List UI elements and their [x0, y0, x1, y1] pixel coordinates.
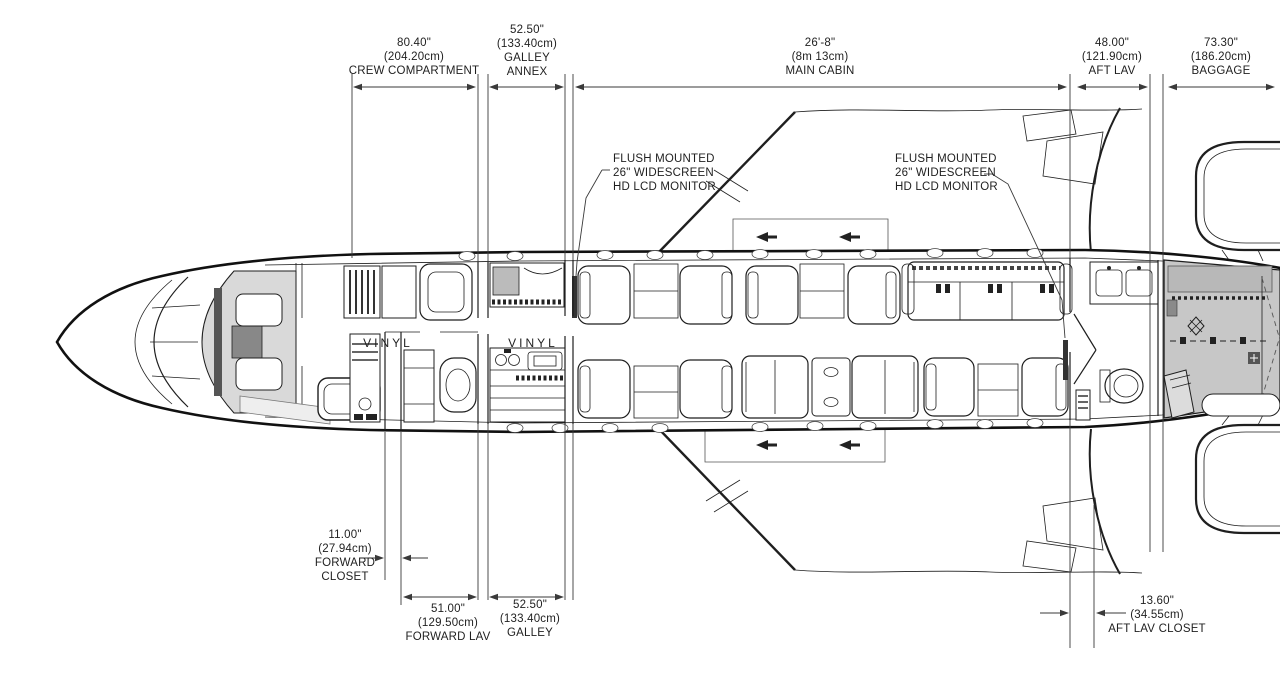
copilot-seat: [236, 358, 282, 390]
forward-lav-toilet: [440, 358, 476, 412]
baggage-shelf: [1168, 266, 1272, 292]
dim-value: 11.00": [328, 529, 361, 541]
crew-berth: [382, 266, 416, 318]
bottom-dimension-forward-lav: 51.00" (129.50cm) FORWARD LAV: [403, 594, 491, 643]
top-dimension-main-cabin: 26'-8" (8m 13cm) MAIN CABIN: [575, 37, 1067, 90]
dim-metric: (133.40cm): [500, 613, 560, 625]
conference-table: [812, 358, 850, 416]
passenger-seat: [746, 266, 798, 324]
top-dimension-crew-compartment: 80.40" (204.20cm) CREW COMPARTMENT: [349, 37, 480, 90]
bottom-dimension-galley: 52.50" (133.40cm) GALLEY: [489, 594, 564, 639]
dim-name: MAIN CABIN: [785, 65, 854, 77]
aircraft-floorplan-drawing: 80.40" (204.20cm) CREW COMPARTMENT 52.50…: [0, 0, 1280, 673]
dim-name: FORWARD LAV: [405, 631, 490, 643]
callout-line: 26" WIDESCREEN: [895, 167, 996, 179]
dim-name: BAGGAGE: [1192, 65, 1251, 77]
dim-metric: (186.20cm): [1191, 51, 1251, 63]
top-dimension-aft-lav: 48.00" (121.90cm) AFT LAV: [1077, 37, 1148, 90]
aft-fairing: [1202, 394, 1280, 416]
dim-value: 48.00": [1095, 37, 1129, 49]
dim-name: CREW COMPARTMENT: [349, 65, 480, 77]
dim-name: AFT LAV CLOSET: [1108, 623, 1206, 635]
aft-lcd-monitor: [1063, 340, 1068, 380]
dim-name: CLOSET: [321, 571, 368, 583]
galley: [490, 348, 565, 422]
floorplan-page: 80.40" (204.20cm) CREW COMPARTMENT 52.50…: [0, 0, 1280, 673]
dim-value: 13.60": [1140, 595, 1174, 607]
dim-name: GALLEY: [507, 627, 553, 639]
dim-value: 51.00": [431, 603, 465, 615]
top-dimension-baggage: 73.30" (186.20cm) BAGGAGE: [1168, 37, 1275, 90]
callout-line: 26" WIDESCREEN: [613, 167, 714, 179]
forward-lav-vanity: [404, 350, 434, 422]
aft-lav-toilet: [1105, 369, 1143, 403]
overwing-exit-arrow: [756, 232, 777, 242]
floor-label-vinyl-mid: VINYL: [508, 336, 558, 350]
callout-line: FLUSH MOUNTED: [895, 153, 997, 165]
baggage-compartment: [1164, 260, 1280, 418]
dim-value: 52.50": [510, 24, 544, 36]
overwing-exit-arrow: [839, 440, 860, 450]
aft-lav-vanity: [1090, 262, 1158, 304]
dim-metric: (129.50cm): [418, 617, 478, 629]
lower-wing: [658, 428, 1142, 574]
passenger-seat: [1022, 358, 1068, 416]
pilot-seat: [236, 294, 282, 326]
passenger-seat: [680, 360, 732, 418]
dim-value: 26'-8": [805, 37, 836, 49]
divan: [902, 262, 1072, 320]
passenger-seat: [680, 266, 732, 324]
dim-name: FORWARD: [315, 557, 375, 569]
callout-line: HD LCD MONITOR: [613, 181, 716, 193]
dim-value: 73.30": [1204, 37, 1238, 49]
dim-metric: (34.55cm): [1130, 609, 1184, 621]
bottom-dimension-forward-closet: 11.00" (27.94cm) FORWARD CLOSET: [315, 529, 428, 583]
callout-line: HD LCD MONITOR: [895, 181, 998, 193]
overwing-exit-arrow: [756, 440, 777, 450]
galley-annex-appliance: [493, 267, 519, 295]
passenger-seat: [924, 358, 974, 416]
passenger-seat: [848, 266, 900, 324]
dim-name: ANNEX: [507, 66, 548, 78]
dim-metric: (8m 13cm): [792, 51, 849, 63]
instrument-panel: [214, 288, 222, 396]
overwing-exit-arrow: [839, 232, 860, 242]
floor-label-vinyl-fwd: VINYL: [363, 336, 413, 350]
dim-metric: (121.90cm): [1082, 51, 1142, 63]
lower-engine-nacelle: [1196, 415, 1280, 533]
dim-name: GALLEY: [504, 52, 550, 64]
dim-metric: (204.20cm): [384, 51, 444, 63]
upper-engine-nacelle: [1196, 142, 1280, 261]
passenger-seat: [578, 266, 630, 324]
galley-annex: [490, 263, 564, 307]
passenger-seat: [578, 360, 630, 418]
dim-name: AFT LAV: [1089, 65, 1136, 77]
dim-value: 52.50": [513, 599, 547, 611]
dim-metric: (27.94cm): [318, 543, 372, 555]
top-dimension-galley-annex: 52.50" (133.40cm) GALLEY ANNEX: [489, 24, 564, 90]
center-console: [232, 326, 262, 358]
dim-metric: (133.40cm): [497, 38, 557, 50]
dim-value: 80.40": [397, 37, 431, 49]
bottom-dimension-aft-lav-closet: 13.60" (34.55cm) AFT LAV CLOSET: [1040, 595, 1206, 635]
callout-line: FLUSH MOUNTED: [613, 153, 715, 165]
